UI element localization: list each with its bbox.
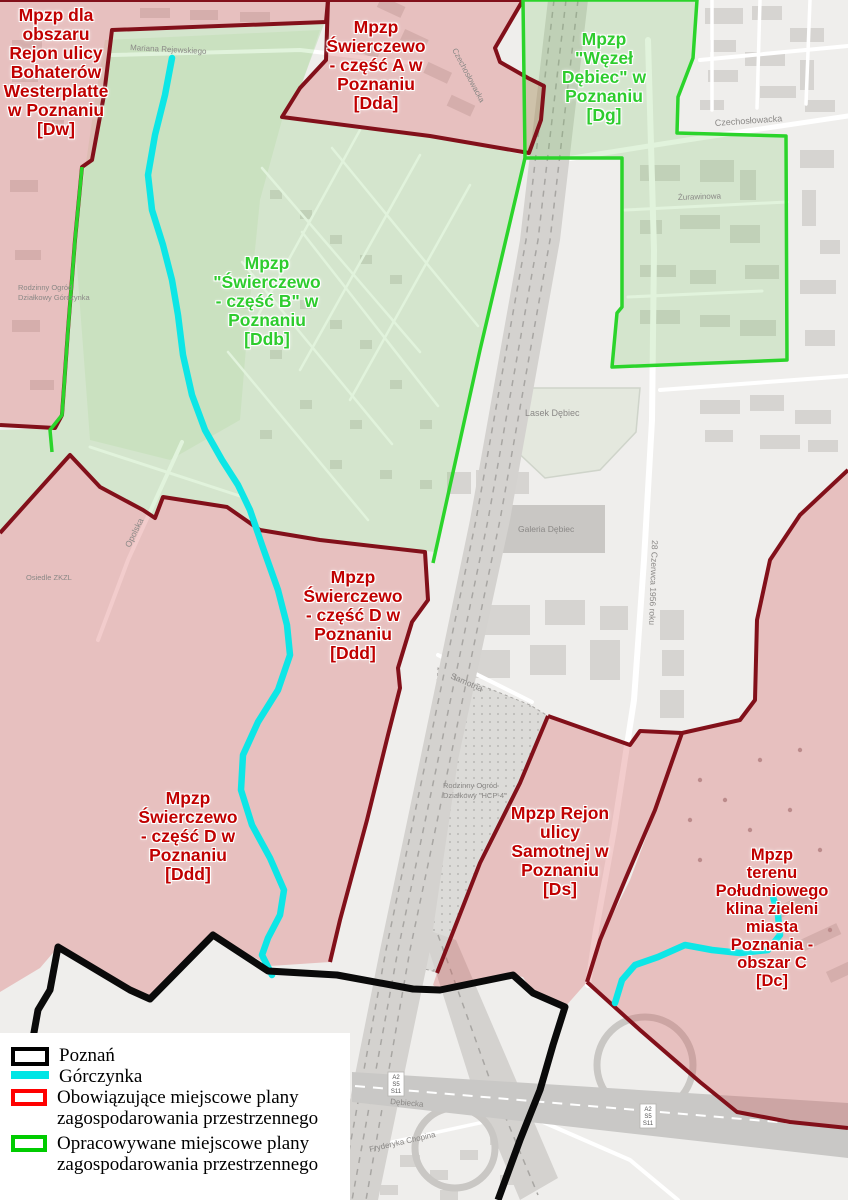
motorway-shield: A2 S5 S11 [640, 1104, 656, 1128]
svg-text:A2: A2 [644, 1107, 652, 1113]
existing-plans-swatch [11, 1089, 47, 1106]
poi-label: Osiedle ZKZL [26, 573, 72, 582]
street-label: Żurawinowa [678, 191, 722, 202]
poi-label: Działkowy Górczynka [18, 293, 91, 302]
legend-item-proposed-plans: Opracowywane miejscowe plany zagospodaro… [11, 1133, 318, 1175]
poi-label: Rodzinny Ogród [443, 781, 497, 790]
zone-label-ddb: Mpzp"Świerczewo- część B" w Poznaniu[Ddb… [200, 254, 334, 349]
legend-item-poznan: Poznań [11, 1045, 115, 1066]
zone-label-ds: Mpzp RejonulicySamotnej w Poznaniu[Ds] [494, 804, 626, 899]
zone-label-dg: Mpzp"WęzełDębiec" w Poznaniu[Dg] [540, 30, 668, 125]
motorway-shield: A2 S5 S11 [388, 1072, 404, 1096]
poi-label: Działkowy "HCP-4" [443, 791, 507, 800]
svg-text:S11: S11 [643, 1121, 654, 1127]
svg-text:S5: S5 [392, 1082, 400, 1088]
zone-label-dc: MpzpterenuPołudniowego klina zielenimias… [706, 846, 838, 990]
zone-label-dw: Mpzp dlaobszaruRejon ulicy BohaterówWest… [0, 6, 112, 139]
svg-text:S11: S11 [391, 1089, 402, 1095]
zone-label-ddd-north: MpzpŚwierczewo- część D w Poznaniu[Ddd] [288, 568, 418, 663]
poznan-boundary-swatch [11, 1047, 49, 1066]
zone-label-dda: MpzpŚwierczewo- część A w Poznaniu[Dda] [310, 18, 442, 113]
proposed-plans-swatch [11, 1135, 47, 1152]
legend: Poznań Górczynka Obowiązujące miejscowe … [0, 1033, 350, 1200]
gorczynka-swatch [11, 1071, 49, 1079]
legend-item-gorczynka: Górczynka [11, 1066, 142, 1087]
zone-label-ddd-south: MpzpŚwierczewo- część D w Poznaniu[Ddd] [122, 789, 254, 884]
poi-label: Galeria Dębiec [518, 524, 575, 534]
legend-item-existing-plans: Obowiązujące miejscowe plany zagospodaro… [11, 1087, 318, 1129]
map-canvas[interactable]: Czechosłowacka Czechosłowacka 28 Czerwca… [0, 0, 848, 1200]
svg-text:A2: A2 [392, 1075, 400, 1081]
poi-label: Rodzinny Ogród [18, 283, 72, 292]
svg-text:S5: S5 [644, 1114, 652, 1120]
base-map: Czechosłowacka Czechosłowacka 28 Czerwca… [0, 0, 848, 1200]
poi-label: Lasek Dębiec [525, 408, 580, 418]
